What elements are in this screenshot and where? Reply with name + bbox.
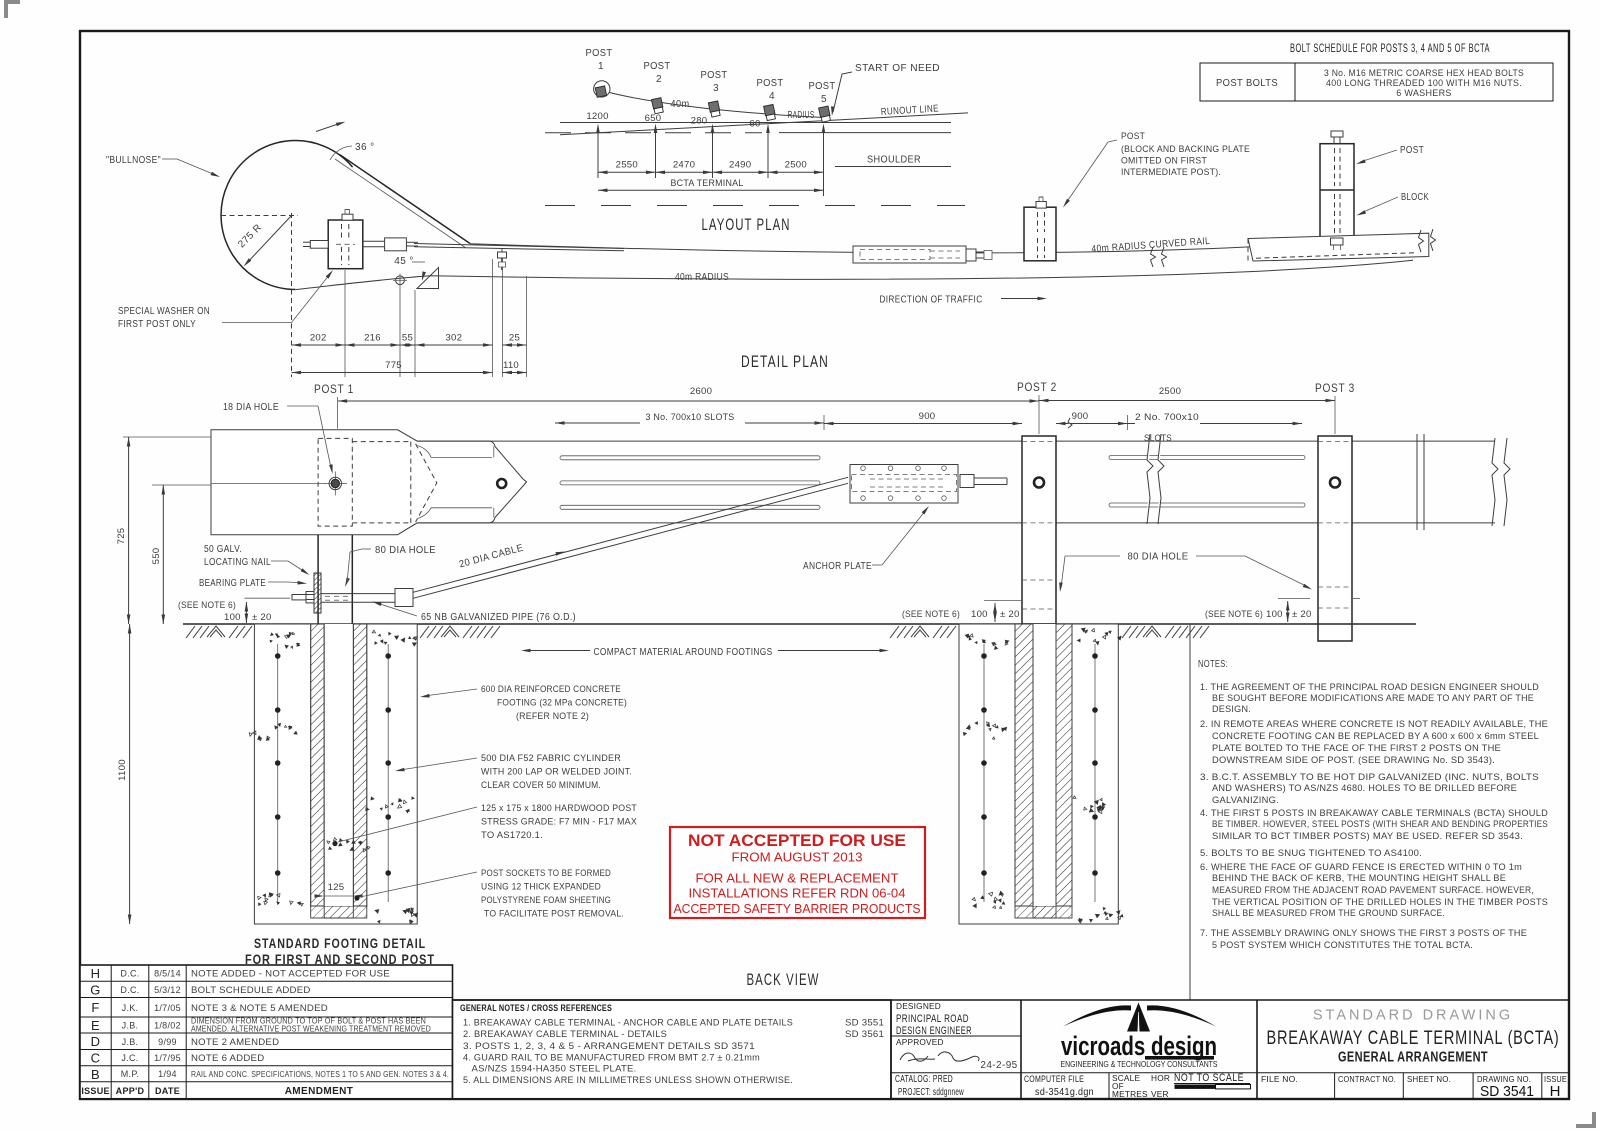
svg-text:± 20: ± 20 xyxy=(1000,609,1020,620)
svg-text:50 GALV.: 50 GALV. xyxy=(204,544,242,555)
svg-text:ISSUE: ISSUE xyxy=(81,1086,110,1096)
svg-text:4: 4 xyxy=(769,91,775,102)
svg-text:HOR: HOR xyxy=(1151,1073,1170,1083)
svg-text:6 WASHERS: 6 WASHERS xyxy=(1396,88,1451,98)
svg-text:SPECIAL WASHER ON: SPECIAL WASHER ON xyxy=(118,306,210,317)
svg-text:3. B.C.T. ASSEMBLY TO BE HOT D: 3. B.C.T. ASSEMBLY TO BE HOT DIP GALVANI… xyxy=(1200,772,1539,783)
svg-text:18 DIA HOLE: 18 DIA HOLE xyxy=(223,402,279,413)
svg-text:SLOTS: SLOTS xyxy=(1144,433,1172,444)
svg-text:BE TIMBER. HOWEVER, STEEL POST: BE TIMBER. HOWEVER, STEEL POSTS (WITH SH… xyxy=(1212,819,1548,830)
svg-text:GENERAL NOTES / CROSS REFERENC: GENERAL NOTES / CROSS REFERENCES xyxy=(460,1003,612,1014)
svg-text:WITH 200 LAP OR WELDED JOINT.: WITH 200 LAP OR WELDED JOINT. xyxy=(481,767,632,778)
svg-text:POST: POST xyxy=(701,70,728,81)
svg-text:sd-3541g.dgn: sd-3541g.dgn xyxy=(1035,1087,1094,1098)
svg-text:SD 3561: SD 3561 xyxy=(845,1029,884,1040)
svg-text:VER: VER xyxy=(1151,1089,1169,1099)
svg-text:NOTE 3 & NOTE 5 AMENDED: NOTE 3 & NOTE 5 AMENDED xyxy=(191,1003,328,1014)
svg-text:AS/NZS 1594-HA350 STEEL PLATE.: AS/NZS 1594-HA350 STEEL PLATE. xyxy=(472,1064,637,1075)
svg-text:M.P.: M.P. xyxy=(121,1069,140,1079)
svg-text:55: 55 xyxy=(402,333,413,344)
svg-text:202: 202 xyxy=(310,333,327,344)
svg-text:80 DIA HOLE: 80 DIA HOLE xyxy=(1128,552,1189,563)
svg-text:2. IN REMOTE AREAS WHERE CONCR: 2. IN REMOTE AREAS WHERE CONCRETE IS NOT… xyxy=(1200,719,1548,730)
svg-text:45 °: 45 ° xyxy=(394,256,414,267)
svg-text:7. THE ASSEMBLY DRAWING ONLY S: 7. THE ASSEMBLY DRAWING ONLY SHOWS THE F… xyxy=(1200,928,1527,939)
svg-text:DESIGN.: DESIGN. xyxy=(1212,704,1251,715)
svg-text:900: 900 xyxy=(1072,411,1089,422)
svg-text:(BLOCK AND BACKING PLATE: (BLOCK AND BACKING PLATE xyxy=(1121,144,1250,155)
svg-text:2. BREAKAWAY CABLE TERMINAL -: 2. BREAKAWAY CABLE TERMINAL - DETAILS xyxy=(463,1029,667,1040)
svg-text:± 20: ± 20 xyxy=(1292,609,1312,620)
svg-text:FOOTING (32 MPa CONCRETE): FOOTING (32 MPa CONCRETE) xyxy=(497,698,627,709)
svg-text:NOTE ADDED - NOT ACCEPTED FOR: NOTE ADDED - NOT ACCEPTED FOR USE xyxy=(191,969,390,980)
svg-text:FOR ALL NEW & REPLACEMENT: FOR ALL NEW & REPLACEMENT xyxy=(696,872,899,886)
svg-text:40m: 40m xyxy=(671,99,690,110)
svg-text:9/99: 9/99 xyxy=(158,1037,177,1047)
svg-text:POST SOCKETS TO BE FORMED: POST SOCKETS TO BE FORMED xyxy=(481,868,611,879)
svg-text:5: 5 xyxy=(821,94,827,105)
svg-text:(SEE NOTE 6): (SEE NOTE 6) xyxy=(1205,609,1263,620)
svg-text:1200: 1200 xyxy=(586,111,608,122)
svg-text:1: 1 xyxy=(598,61,604,72)
svg-text:1. BREAKAWAY CABLE TERMINAL -: 1. BREAKAWAY CABLE TERMINAL - ANCHOR CAB… xyxy=(463,1018,793,1029)
svg-text:METRES: METRES xyxy=(1112,1089,1148,1099)
svg-text:APPROVED: APPROVED xyxy=(896,1037,944,1047)
svg-text:1/94: 1/94 xyxy=(158,1069,177,1079)
svg-text:STRESS GRADE: F7 MIN - F17 MAX: STRESS GRADE: F7 MIN - F17 MAX xyxy=(481,817,637,828)
svg-text:RADIUS: RADIUS xyxy=(788,110,815,121)
svg-text:POLYSTYRENE FOAM SHEETING: POLYSTYRENE FOAM SHEETING xyxy=(481,895,611,906)
svg-text:STANDARD DRAWING: STANDARD DRAWING xyxy=(1313,1008,1513,1024)
svg-text:E: E xyxy=(91,1018,100,1033)
svg-text:BEHIND THE BACK OF KERB, THE M: BEHIND THE BACK OF KERB, THE MOUNTING HE… xyxy=(1212,873,1506,884)
svg-text:2470: 2470 xyxy=(673,160,695,171)
svg-text:8/5/14: 8/5/14 xyxy=(154,969,181,979)
svg-text:125: 125 xyxy=(328,882,345,893)
svg-text:POST 2: POST 2 xyxy=(1017,380,1057,394)
svg-text:POST: POST xyxy=(809,81,836,92)
svg-text:40m RADIUS: 40m RADIUS xyxy=(675,272,729,283)
svg-text:AMENDMENT: AMENDMENT xyxy=(285,1086,354,1097)
svg-text:2500: 2500 xyxy=(785,160,807,171)
svg-text:24-2-95: 24-2-95 xyxy=(980,1060,1017,1071)
svg-text:1/7/95: 1/7/95 xyxy=(154,1053,181,1063)
svg-text:2600: 2600 xyxy=(690,386,712,397)
svg-text:BOLT SCHEDULE ADDED: BOLT SCHEDULE ADDED xyxy=(191,985,311,996)
svg-text:USING 12 THICK EXPANDED: USING 12 THICK EXPANDED xyxy=(481,882,601,893)
svg-text:2500: 2500 xyxy=(1159,386,1181,397)
svg-text:THE VERTICAL POSITION OF THE D: THE VERTICAL POSITION OF THE DRILLED HOL… xyxy=(1212,897,1548,908)
svg-text:NOTES:: NOTES: xyxy=(1198,659,1228,670)
svg-text:START OF NEED: START OF NEED xyxy=(855,63,940,74)
svg-text:SHOULDER: SHOULDER xyxy=(867,155,921,166)
svg-text:650: 650 xyxy=(645,113,662,124)
svg-text:COMPUTER FILE: COMPUTER FILE xyxy=(1024,1074,1084,1084)
svg-text:FIRST POST ONLY: FIRST POST ONLY xyxy=(118,319,196,330)
svg-text:OMITTED ON FIRST: OMITTED ON FIRST xyxy=(1121,156,1207,167)
svg-text:1100: 1100 xyxy=(117,759,128,781)
svg-text:2 No. 700x10: 2 No. 700x10 xyxy=(1135,412,1199,423)
svg-text:80 DIA HOLE: 80 DIA HOLE xyxy=(375,545,436,556)
svg-text:GENERAL ARRANGEMENT: GENERAL ARRANGEMENT xyxy=(1338,1050,1488,1066)
svg-text:CONCRETE FOOTING CAN BE REPLAC: CONCRETE FOOTING CAN BE REPLACED BY A 60… xyxy=(1212,731,1539,742)
svg-text:J.K.: J.K. xyxy=(122,1003,139,1013)
svg-text:D.C.: D.C. xyxy=(120,985,139,995)
svg-text:5/3/12: 5/3/12 xyxy=(154,985,181,995)
svg-text:COMPACT MATERIAL AROUND FOOTIN: COMPACT MATERIAL AROUND FOOTINGS xyxy=(594,647,773,658)
svg-text:POST: POST xyxy=(1400,145,1424,156)
svg-text:F: F xyxy=(91,1000,100,1015)
svg-text:NOTE 2 AMENDED: NOTE 2 AMENDED xyxy=(191,1037,279,1048)
svg-text:H: H xyxy=(91,966,101,981)
svg-text:SD 3541: SD 3541 xyxy=(1480,1083,1534,1100)
svg-text:BE SOUGHT BEFORE MODIFICATIONS: BE SOUGHT BEFORE MODIFICATIONS ARE MADE … xyxy=(1212,693,1534,704)
svg-text:110: 110 xyxy=(503,360,519,371)
svg-text:J.B.: J.B. xyxy=(122,1037,139,1047)
svg-text:POST 1: POST 1 xyxy=(314,382,354,396)
svg-text:SIMILAR TO BCT TIMBER POSTS) M: SIMILAR TO BCT TIMBER POSTS) MAY BE USED… xyxy=(1212,831,1523,842)
svg-text:NOTE 6 ADDED: NOTE 6 ADDED xyxy=(191,1053,264,1064)
svg-text:4. THE FIRST 5 POSTS IN BREAKA: 4. THE FIRST 5 POSTS IN BREAKAWAY CABLE … xyxy=(1200,808,1548,819)
svg-text:775: 775 xyxy=(385,360,402,371)
svg-text:ENGINEERING & TECHNOLOGY CONSU: ENGINEERING & TECHNOLOGY CONSULTANTS xyxy=(1061,1059,1218,1069)
svg-text:CLEAR COVER 50 MINIMUM.: CLEAR COVER 50 MINIMUM. xyxy=(481,780,601,791)
svg-text:LOCATING NAIL: LOCATING NAIL xyxy=(204,557,271,568)
svg-text:1. THE AGREEMENT OF THE PRINCI: 1. THE AGREEMENT OF THE PRINCIPAL ROAD D… xyxy=(1200,682,1539,693)
svg-text:DOWNSTREAM SIDE OF POST. (SEE: DOWNSTREAM SIDE OF POST. (SEE DRAWING No… xyxy=(1212,755,1495,766)
svg-text:1/8/02: 1/8/02 xyxy=(154,1021,181,1031)
svg-text:3 No. M16 METRIC COARSE HEX HE: 3 No. M16 METRIC COARSE HEX HEAD BOLTS xyxy=(1324,68,1524,78)
svg-text:500 DIA F52 FABRIC CYLINDER: 500 DIA F52 FABRIC CYLINDER xyxy=(481,753,621,764)
svg-text:280: 280 xyxy=(691,116,708,127)
svg-text:B: B xyxy=(91,1067,100,1082)
svg-text:RAIL AND CONC. SPECIFICATIONS,: RAIL AND CONC. SPECIFICATIONS, NOTES 1 T… xyxy=(191,1069,449,1079)
svg-text:5. BOLTS TO BE SNUG TIGHTENED: 5. BOLTS TO BE SNUG TIGHTENED TO AS4100. xyxy=(1200,848,1422,859)
svg-text:100: 100 xyxy=(224,612,241,623)
svg-text:BCTA TERMINAL: BCTA TERMINAL xyxy=(671,178,744,189)
svg-text:PRINCIPAL ROAD: PRINCIPAL ROAD xyxy=(896,1013,969,1025)
svg-text:STANDARD FOOTING DETAIL: STANDARD FOOTING DETAIL xyxy=(254,935,426,951)
svg-text:(REFER NOTE 2): (REFER NOTE 2) xyxy=(516,711,589,722)
svg-text:AMENDED. ALTERNATIVE POST WEAK: AMENDED. ALTERNATIVE POST WEAKENING TREA… xyxy=(191,1024,431,1034)
svg-text:BACK VIEW: BACK VIEW xyxy=(747,970,820,989)
svg-text:POST 3: POST 3 xyxy=(1315,381,1355,395)
svg-text:PROJECT: sddgnnew: PROJECT: sddgnnew xyxy=(898,1087,964,1098)
svg-text:"BULLNOSE": "BULLNOSE" xyxy=(106,155,161,166)
svg-text:ACCEPTED SAFETY BARRIER PRODUC: ACCEPTED SAFETY BARRIER PRODUCTS xyxy=(674,902,921,916)
svg-text:ANCHOR PLATE: ANCHOR PLATE xyxy=(803,561,872,572)
svg-text:SHALL BE MEASURED FROM THE GRO: SHALL BE MEASURED FROM THE GROUND SURFAC… xyxy=(1212,908,1445,919)
svg-text:FROM AUGUST 2013: FROM AUGUST 2013 xyxy=(732,851,863,865)
svg-text:POST: POST xyxy=(644,61,671,72)
svg-text:D: D xyxy=(91,1034,101,1049)
svg-text:DESIGN ENGINEER: DESIGN ENGINEER xyxy=(896,1025,972,1037)
svg-text:BOLT SCHEDULE FOR POSTS 3, 4 A: BOLT SCHEDULE FOR POSTS 3, 4 AND 5 OF BC… xyxy=(1290,41,1490,55)
svg-text:BEARING PLATE: BEARING PLATE xyxy=(199,578,266,589)
svg-text:5 POST SYSTEM WHICH CONSTITUTE: 5 POST SYSTEM WHICH CONSTITUTES THE TOTA… xyxy=(1212,940,1473,951)
svg-text:CATALOG: PRED: CATALOG: PRED xyxy=(895,1074,953,1085)
svg-text:BLOCK: BLOCK xyxy=(1401,192,1429,203)
svg-text:D.C.: D.C. xyxy=(120,969,139,979)
svg-text:POST: POST xyxy=(1121,131,1145,142)
svg-text:APP'D: APP'D xyxy=(116,1086,145,1096)
svg-text:550: 550 xyxy=(151,548,162,565)
svg-text:DIRECTION OF TRAFFIC: DIRECTION OF TRAFFIC xyxy=(880,295,983,306)
svg-text:25: 25 xyxy=(509,333,520,344)
svg-text:5. ALL DIMENSIONS ARE IN MILLI: 5. ALL DIMENSIONS ARE IN MILLIMETRES UNL… xyxy=(463,1075,793,1086)
svg-text:36 °: 36 ° xyxy=(355,142,375,153)
svg-text:NOT TO SCALE: NOT TO SCALE xyxy=(1174,1072,1244,1084)
svg-text:(SEE NOTE 6): (SEE NOTE 6) xyxy=(178,600,236,611)
svg-text:125 x 175 x 1800 HARDWOOD POST: 125 x 175 x 1800 HARDWOOD POST xyxy=(481,803,637,814)
svg-text:J.B.: J.B. xyxy=(122,1021,139,1031)
svg-text:100: 100 xyxy=(1266,609,1283,620)
svg-text:302: 302 xyxy=(445,333,462,344)
svg-text:MEASURED FROM THE ADJACENT ROA: MEASURED FROM THE ADJACENT ROAD PAVEMENT… xyxy=(1212,885,1534,896)
svg-text:600 DIA REINFORCED CONCRETE: 600 DIA REINFORCED CONCRETE xyxy=(481,684,621,695)
svg-text:G: G xyxy=(90,982,101,997)
svg-text:100: 100 xyxy=(971,609,988,620)
svg-text:2490: 2490 xyxy=(729,160,751,171)
svg-text:INSTALLATIONS REFER RDN 06-04: INSTALLATIONS REFER RDN 06-04 xyxy=(689,887,906,901)
svg-text:1/7/05: 1/7/05 xyxy=(154,1003,181,1013)
svg-text:SD 3551: SD 3551 xyxy=(845,1018,884,1029)
svg-text:H: H xyxy=(1550,1083,1561,1100)
svg-text:LAYOUT PLAN: LAYOUT PLAN xyxy=(702,215,791,234)
svg-text:BREAKAWAY CABLE TERMINAL (BCTA: BREAKAWAY CABLE TERMINAL (BCTA) xyxy=(1267,1028,1560,1049)
svg-text:6. WHERE THE FACE OF GUARD FEN: 6. WHERE THE FACE OF GUARD FENCE IS EREC… xyxy=(1200,862,1522,873)
svg-text:J.C.: J.C. xyxy=(121,1053,138,1063)
svg-text:3 No. 700x10 SLOTS: 3 No. 700x10 SLOTS xyxy=(646,412,735,423)
svg-text:65 NB GALVANIZED PIPE (76 O.D.: 65 NB GALVANIZED PIPE (76 O.D.) xyxy=(421,612,576,623)
svg-text:(SEE NOTE 6): (SEE NOTE 6) xyxy=(902,609,960,620)
svg-text:POST: POST xyxy=(757,78,784,89)
svg-text:725: 725 xyxy=(116,528,127,545)
svg-text:POST: POST xyxy=(586,48,613,59)
svg-text:216: 216 xyxy=(364,333,381,344)
svg-text:2: 2 xyxy=(656,74,662,85)
svg-text:GALVANIZING.: GALVANIZING. xyxy=(1212,795,1279,806)
svg-text:3: 3 xyxy=(713,83,719,94)
svg-text:SHEET NO.: SHEET NO. xyxy=(1407,1074,1451,1084)
svg-text:3. POSTS 1, 2, 3, 4 & 5 - ARRA: 3. POSTS 1, 2, 3, 4 & 5 - ARRANGEMENT DE… xyxy=(463,1041,755,1052)
svg-text:4. GUARD RAIL TO BE MANUFACTUR: 4. GUARD RAIL TO BE MANUFACTURED FROM BM… xyxy=(463,1053,760,1064)
svg-text:TO FACILITATE POST REMOVAL.: TO FACILITATE POST REMOVAL. xyxy=(484,909,624,920)
svg-text:TO AS1720.1.: TO AS1720.1. xyxy=(481,830,543,841)
svg-text:DESIGNED: DESIGNED xyxy=(896,1001,941,1011)
svg-text:CONTRACT NO.: CONTRACT NO. xyxy=(1338,1074,1396,1084)
svg-text:NOT ACCEPTED FOR USE: NOT ACCEPTED FOR USE xyxy=(688,831,906,850)
svg-text:PLATE BOLTED TO THE FACE OF TH: PLATE BOLTED TO THE FACE OF THE FIRST 2 … xyxy=(1212,743,1501,754)
svg-text:2550: 2550 xyxy=(616,160,638,171)
svg-text:± 20: ± 20 xyxy=(252,612,272,623)
svg-text:900: 900 xyxy=(919,411,936,422)
svg-text:DETAIL PLAN: DETAIL PLAN xyxy=(741,352,829,371)
svg-text:POST BOLTS: POST BOLTS xyxy=(1216,78,1278,89)
svg-text:400 LONG THREADED 100 WITH M16: 400 LONG THREADED 100 WITH M16 NUTS. xyxy=(1326,78,1522,88)
svg-text:60: 60 xyxy=(749,119,760,130)
svg-text:FILE NO.: FILE NO. xyxy=(1261,1074,1298,1084)
svg-text:INTERMEDIATE POST).: INTERMEDIATE POST). xyxy=(1121,167,1221,178)
svg-text:DATE: DATE xyxy=(155,1086,180,1096)
svg-text:C: C xyxy=(91,1051,101,1066)
svg-text:AND WASHERS) TO AS/NZS 4680. H: AND WASHERS) TO AS/NZS 4680. HOLES TO BE… xyxy=(1212,783,1517,794)
